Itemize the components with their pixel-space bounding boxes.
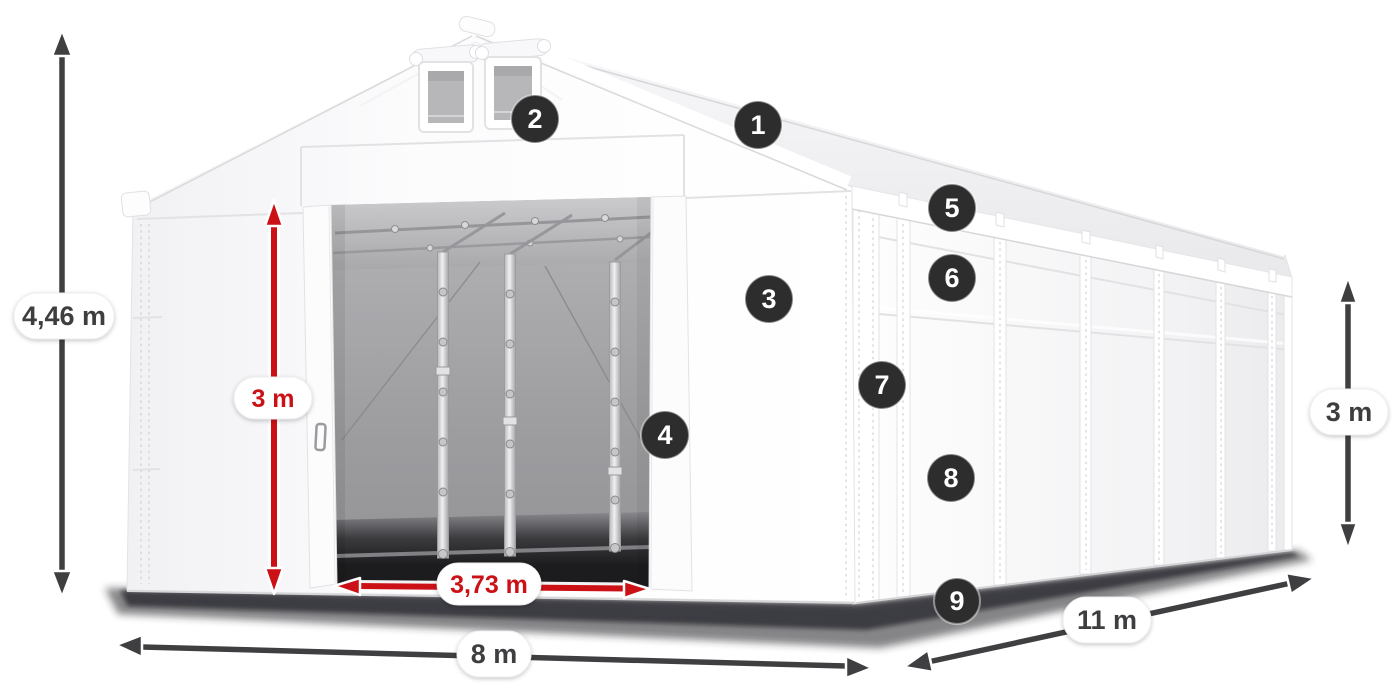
svg-text:7: 7 xyxy=(874,370,889,400)
svg-text:3,73 m: 3,73 m xyxy=(450,571,528,599)
vent-window-left xyxy=(410,44,483,132)
badge-7: 7 xyxy=(858,361,906,409)
door-opening xyxy=(331,197,660,589)
svg-text:1: 1 xyxy=(750,110,765,140)
badge-8: 8 xyxy=(927,454,975,502)
arrowhead-up xyxy=(52,30,72,56)
arrowhead-right xyxy=(846,656,872,678)
svg-text:4: 4 xyxy=(657,420,672,450)
svg-text:5: 5 xyxy=(944,193,959,223)
svg-text:3: 3 xyxy=(761,284,776,314)
badge-5: 5 xyxy=(928,184,976,232)
door-right-jamb xyxy=(649,196,692,591)
svg-text:3 m: 3 m xyxy=(251,385,294,413)
badge-4: 4 xyxy=(641,411,689,459)
pole xyxy=(505,254,516,556)
eave-corner-cap xyxy=(121,191,151,218)
svg-text:11 m: 11 m xyxy=(1077,605,1137,635)
arrowhead-down xyxy=(1339,523,1357,549)
dimension-total-height: 4,46 m xyxy=(14,30,114,597)
svg-text:6: 6 xyxy=(944,263,959,293)
svg-text:9: 9 xyxy=(949,586,964,616)
arrowhead-up xyxy=(1339,277,1357,303)
back-corner-strap xyxy=(1284,278,1292,550)
tent-diagram-stage: 1 2 3 4 5 6 7 8 9 4,46 m 3 m 3,73 m xyxy=(0,0,1400,700)
svg-text:3 m: 3 m xyxy=(1326,397,1373,427)
svg-text:2: 2 xyxy=(527,104,542,134)
badge-1: 1 xyxy=(734,101,782,149)
svg-text:8 m: 8 m xyxy=(471,639,518,669)
badge-3: 3 xyxy=(745,275,793,323)
tent-diagram: 1 2 3 4 5 6 7 8 9 4,46 m 3 m 3,73 m xyxy=(0,0,1400,700)
arrowhead-left xyxy=(116,635,142,657)
dimension-side-wall-height: 3 m xyxy=(1310,277,1388,549)
interior-ceiling xyxy=(331,197,651,270)
svg-text:8: 8 xyxy=(943,463,958,493)
badge-2: 2 xyxy=(511,95,559,143)
arrowhead-left xyxy=(904,650,933,672)
svg-text:4,46 m: 4,46 m xyxy=(22,301,106,331)
badge-6: 6 xyxy=(928,254,976,302)
pole xyxy=(438,252,449,558)
arrowhead-down xyxy=(52,571,72,597)
arrowhead-right xyxy=(1286,573,1315,594)
badge-9: 9 xyxy=(934,578,980,624)
